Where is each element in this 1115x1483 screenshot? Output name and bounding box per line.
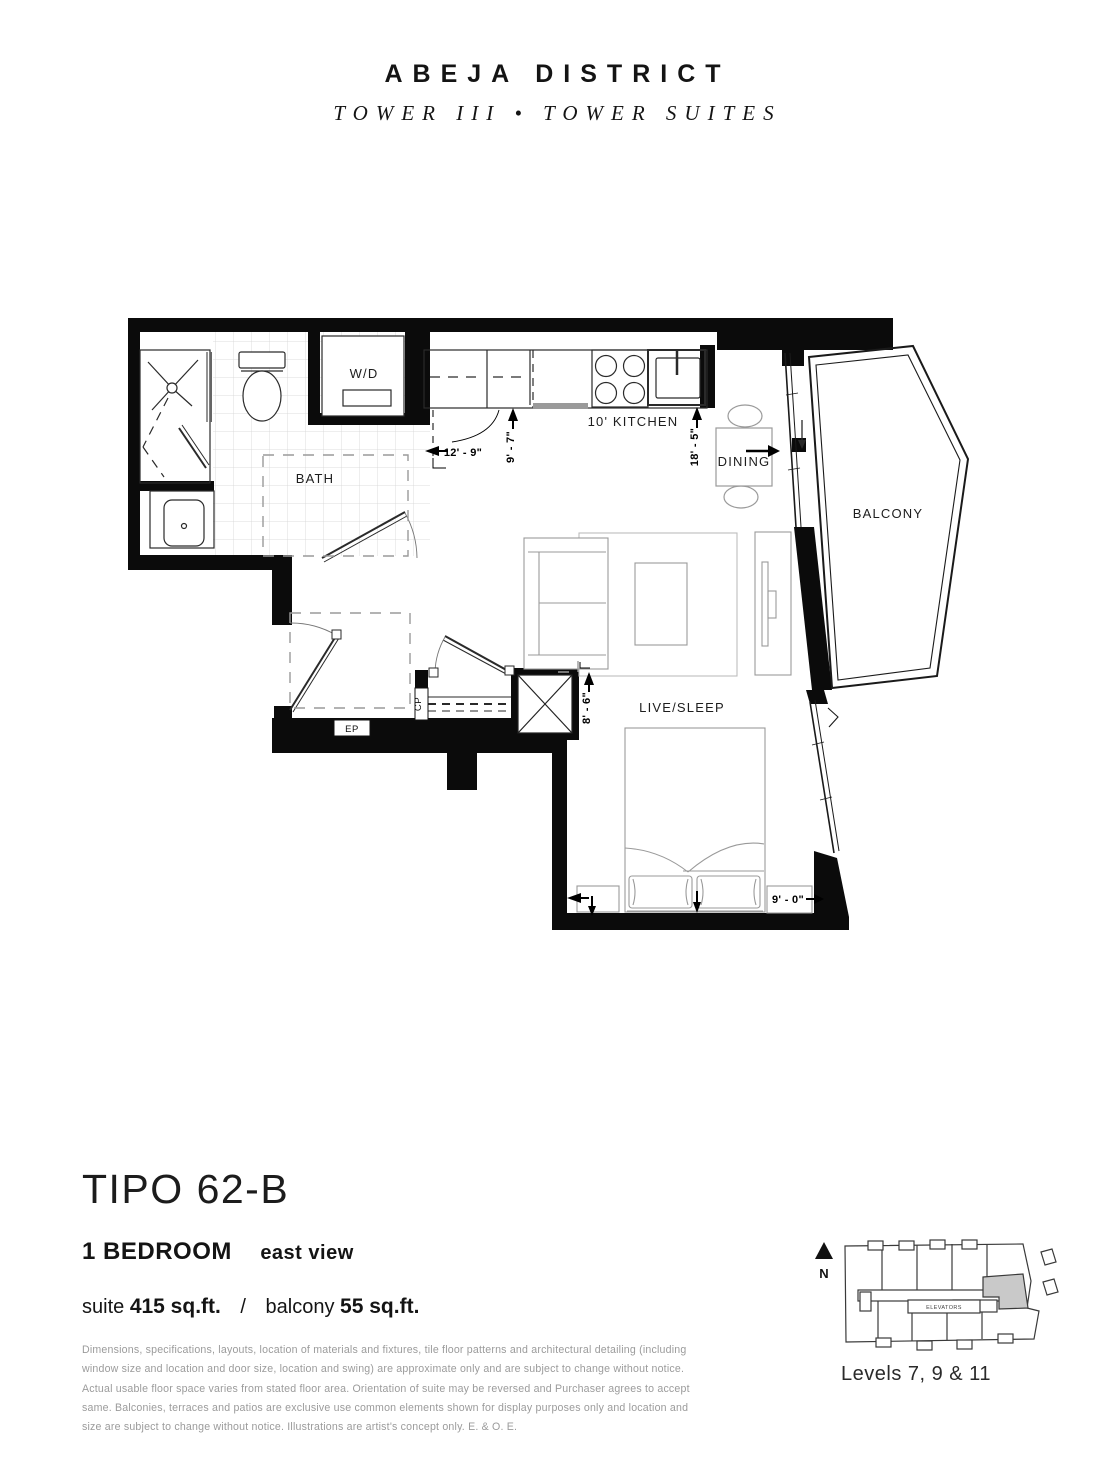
brand-subtitle: TOWER III • TOWER SUITES bbox=[0, 101, 1115, 126]
entry-door bbox=[290, 623, 341, 712]
vanity-sink bbox=[150, 491, 214, 548]
balcony-area-label: balcony bbox=[266, 1296, 335, 1318]
dimension-live-width: 8' - 6" bbox=[580, 662, 594, 724]
svg-text:9' - 7": 9' - 7" bbox=[505, 431, 517, 463]
dining-label: DINING bbox=[718, 454, 771, 469]
levels-caption: Levels 7, 9 & 11 bbox=[841, 1363, 991, 1386]
kitchen-counter bbox=[424, 350, 707, 409]
bath-label: BATH bbox=[296, 471, 335, 486]
toilet bbox=[239, 352, 285, 421]
suite-areas-line: suite 415 sq.ft. / balcony 55 sq.ft. bbox=[82, 1295, 419, 1319]
key-plan: N bbox=[800, 1228, 1080, 1363]
suite-type: 1 BEDROOM bbox=[82, 1238, 232, 1265]
north-label: N bbox=[819, 1266, 828, 1281]
brochure-page: ABEJA DISTRICT TOWER III • TOWER SUITES bbox=[0, 0, 1115, 1483]
floor-plan: EP CP BATH W/D 10' KITCHEN DINING BALCON… bbox=[115, 300, 995, 948]
elevators-label: ELEVATORS bbox=[926, 1305, 962, 1311]
coffee-table bbox=[635, 563, 687, 645]
ep-label: EP bbox=[345, 724, 359, 735]
svg-text:9' - 0": 9' - 0" bbox=[772, 894, 804, 906]
shower-drain-icon bbox=[167, 383, 177, 393]
shower bbox=[140, 350, 211, 483]
tv-console bbox=[755, 532, 791, 675]
brand-title: ABEJA DISTRICT bbox=[0, 60, 1115, 89]
legal-disclaimer: Dimensions, specifications, layouts, loc… bbox=[82, 1341, 696, 1437]
kitchen-label: 10' KITCHEN bbox=[588, 414, 679, 429]
shaft bbox=[511, 668, 579, 740]
dimension-hall-width: 12' - 9" bbox=[425, 410, 499, 468]
svg-text:18' - 5": 18' - 5" bbox=[689, 428, 701, 466]
suite-area-value: 415 sq.ft. bbox=[130, 1295, 221, 1318]
svg-text:8' - 6": 8' - 6" bbox=[581, 692, 593, 724]
closet bbox=[428, 697, 511, 711]
dimension-kitchen-length: 18' - 5" bbox=[689, 407, 702, 466]
building-outline bbox=[845, 1240, 1058, 1350]
balcony-label: BALCONY bbox=[853, 506, 924, 521]
closet-door bbox=[429, 636, 514, 677]
north-arrow-icon: N bbox=[815, 1242, 833, 1281]
svg-text:12' - 9": 12' - 9" bbox=[444, 447, 482, 459]
bed bbox=[625, 728, 765, 912]
area-separator: / bbox=[240, 1296, 246, 1318]
wd-label: W/D bbox=[350, 366, 379, 381]
sofa bbox=[524, 538, 608, 669]
cp-label: CP bbox=[413, 697, 424, 711]
balcony-area-value: 55 sq.ft. bbox=[340, 1295, 419, 1318]
suite-view: east view bbox=[260, 1242, 353, 1264]
suite-area-label: suite bbox=[82, 1296, 124, 1318]
window-break-icon bbox=[828, 708, 838, 727]
live-sleep-label: LIVE/SLEEP bbox=[639, 700, 725, 715]
dimension-kitchen-depth: 9' - 7" bbox=[505, 408, 518, 463]
suite-name: TIPO 62-B bbox=[82, 1166, 289, 1213]
suite-type-line: 1 BEDROOM east view bbox=[82, 1238, 354, 1266]
